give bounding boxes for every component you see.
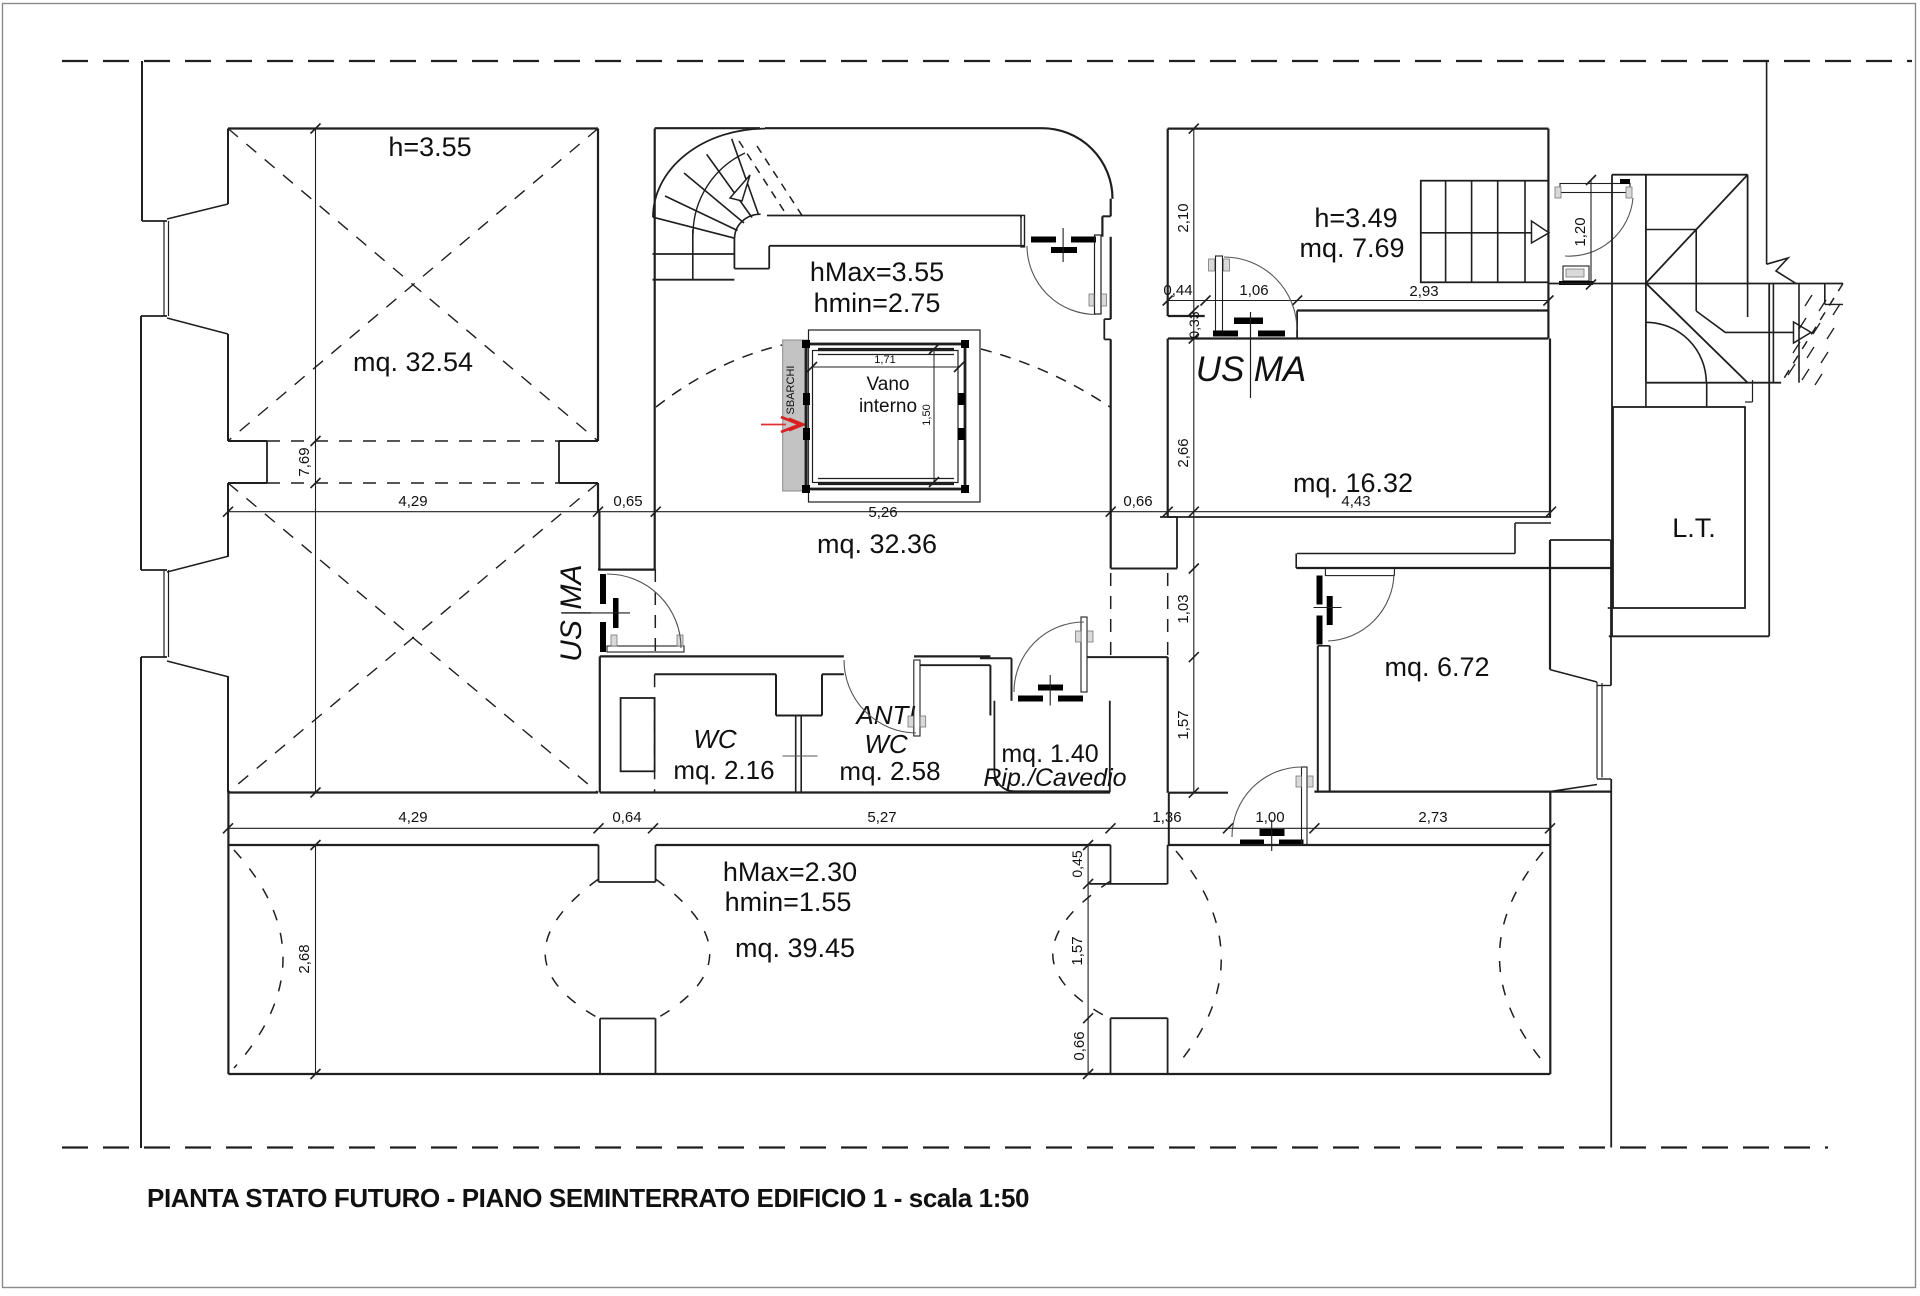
svg-text:0,45: 0,45: [1069, 850, 1085, 877]
svg-text:mq. 39.45: mq. 39.45: [735, 933, 855, 963]
svg-text:h=3.49: h=3.49: [1314, 203, 1397, 233]
svg-text:1,20: 1,20: [1572, 217, 1589, 246]
svg-text:0,66: 0,66: [1071, 1031, 1088, 1060]
svg-text:7,69: 7,69: [296, 447, 313, 476]
svg-text:PIANTA STATO FUTURO - PIANO SE: PIANTA STATO FUTURO - PIANO SEMINTERRATO…: [147, 1183, 1029, 1213]
svg-text:1,36: 1,36: [1152, 809, 1181, 826]
svg-text:interno: interno: [859, 396, 917, 417]
svg-text:mq. 32.54: mq. 32.54: [353, 347, 473, 377]
svg-text:2,66: 2,66: [1175, 438, 1192, 467]
svg-text:Vano: Vano: [867, 374, 910, 395]
svg-text:5,26: 5,26: [868, 504, 897, 521]
svg-text:2,73: 2,73: [1418, 809, 1447, 826]
svg-text:US: US: [555, 620, 588, 662]
svg-text:hMax=3.55: hMax=3.55: [810, 257, 944, 287]
svg-text:0,65: 0,65: [613, 493, 642, 510]
svg-text:L.T.: L.T.: [1672, 513, 1716, 543]
svg-text:Rip./Cavedio: Rip./Cavedio: [983, 764, 1126, 792]
svg-text:1,00: 1,00: [1255, 809, 1284, 826]
svg-text:MA: MA: [1254, 350, 1307, 389]
svg-text:2,93: 2,93: [1409, 283, 1438, 300]
svg-text:WC: WC: [693, 724, 737, 754]
svg-text:2,10: 2,10: [1175, 203, 1192, 232]
svg-text:mq. 2.58: mq. 2.58: [839, 756, 940, 786]
svg-text:4,29: 4,29: [398, 493, 427, 510]
svg-text:mq. 32.36: mq. 32.36: [817, 529, 937, 559]
svg-text:5,27: 5,27: [867, 809, 896, 826]
svg-text:1,57: 1,57: [1175, 710, 1192, 739]
svg-text:0,44: 0,44: [1163, 282, 1192, 299]
svg-text:hmin=2.75: hmin=2.75: [814, 288, 941, 318]
svg-text:1,50: 1,50: [921, 404, 933, 425]
svg-text:1,57: 1,57: [1069, 936, 1086, 965]
svg-text:2,68: 2,68: [296, 944, 313, 973]
svg-text:0,66: 0,66: [1123, 493, 1152, 510]
svg-text:SBARCHI: SBARCHI: [785, 366, 797, 415]
svg-text:1,71: 1,71: [874, 354, 895, 366]
svg-text:0,64: 0,64: [612, 809, 641, 826]
svg-text:US: US: [1196, 350, 1245, 389]
svg-text:mq. 2.16: mq. 2.16: [673, 755, 774, 785]
svg-text:MA: MA: [555, 565, 588, 610]
svg-text:1,06: 1,06: [1239, 282, 1268, 299]
svg-text:4,29: 4,29: [398, 809, 427, 826]
svg-text:0,33: 0,33: [1186, 311, 1202, 338]
svg-text:h=3.55: h=3.55: [388, 132, 471, 162]
svg-text:hMax=2.30: hMax=2.30: [723, 857, 857, 887]
svg-text:mq. 7.69: mq. 7.69: [1299, 233, 1404, 263]
svg-text:WC: WC: [864, 729, 908, 759]
svg-text:mq. 6.72: mq. 6.72: [1384, 652, 1489, 682]
svg-text:mq. 16.32: mq. 16.32: [1293, 468, 1413, 498]
svg-text:hmin=1.55: hmin=1.55: [725, 887, 852, 917]
svg-text:1,03: 1,03: [1175, 594, 1192, 623]
